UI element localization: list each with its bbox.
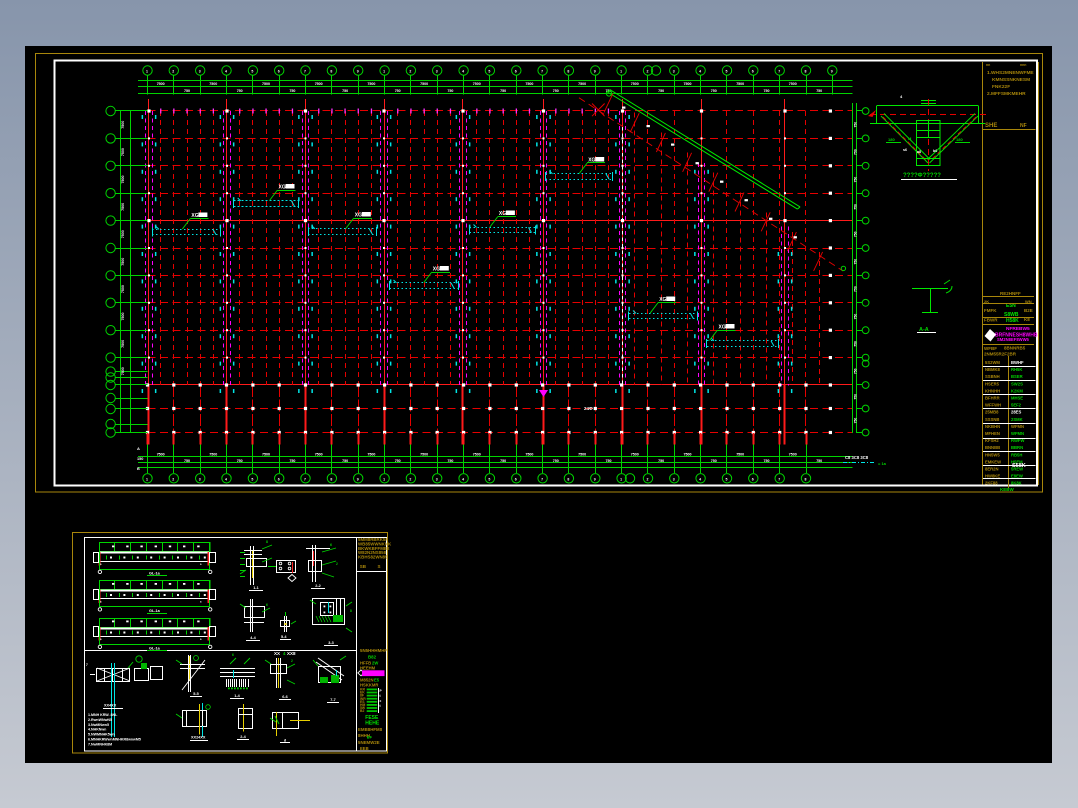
svg-text:750: 750 <box>816 459 822 463</box>
svg-text:7500: 7500 <box>420 82 428 86</box>
svg-text:nnn: nnn <box>1020 63 1026 67</box>
svg-text:7500: 7500 <box>420 453 428 457</box>
svg-text:750: 750 <box>237 459 243 463</box>
svg-text:WFMN: WFMN <box>1011 431 1024 436</box>
svg-text:BFHRR: BFHRR <box>985 396 1000 401</box>
svg-text:WFBF: WFBF <box>984 346 997 351</box>
svg-text:7500: 7500 <box>209 453 217 457</box>
svg-text:7500: 7500 <box>157 453 165 457</box>
svg-text:5: 5 <box>488 70 490 74</box>
svg-text:7500: 7500 <box>157 82 165 86</box>
svg-text:3: 3 <box>199 477 201 481</box>
svg-text:BF: BF <box>367 735 373 740</box>
svg-text:750: 750 <box>711 459 717 463</box>
svg-text:180: 180 <box>956 137 963 142</box>
svg-text:8: 8 <box>350 609 352 613</box>
svg-text:6.MNHKRWwnMNHKR8wnwM5: 6.MNHKRWwnMNHKR8wnwM5 <box>88 738 141 742</box>
svg-text:2.MFFSMKMEHR: 2.MFFSMKMEHR <box>987 91 1026 97</box>
svg-text:6: 6 <box>752 70 754 74</box>
svg-text:7500: 7500 <box>736 453 744 457</box>
svg-text:HN5W5: HN5W5 <box>985 452 1000 457</box>
svg-text:XX8: XX8 <box>287 651 296 656</box>
svg-text:GL-1a: GL-1a <box>149 647 161 651</box>
svg-text:XX4XX: XX4XX <box>104 704 117 708</box>
svg-text:MHSE: MHSE <box>1011 396 1023 401</box>
svg-text:2: 2 <box>291 659 293 663</box>
svg-text:7500: 7500 <box>121 313 125 321</box>
svg-text:MFHEN: MFHEN <box>985 431 1000 436</box>
svg-text:EMB8HFM8: EMB8HFM8 <box>358 727 383 732</box>
svg-text:SSBNH: SSBNH <box>985 374 1000 379</box>
svg-text:NKBHN: NKBHN <box>985 424 1000 429</box>
svg-text:7500: 7500 <box>736 82 744 86</box>
svg-text:1: 1 <box>146 70 148 74</box>
svg-text:4: 4 <box>225 477 227 481</box>
svg-text:7: 7 <box>304 70 306 74</box>
svg-text:5-5: 5-5 <box>193 692 199 696</box>
svg-text:GL-1a: GL-1a <box>149 609 161 613</box>
svg-text:1.WHS2MNENWFME: 1.WHS2MNENWFME <box>987 70 1034 76</box>
svg-text:3: 3 <box>673 477 675 481</box>
svg-text:SB: SB <box>360 564 367 569</box>
svg-text:7500: 7500 <box>367 453 375 457</box>
svg-text:750: 750 <box>854 149 858 155</box>
svg-text:6: 6 <box>278 477 280 481</box>
svg-text:750: 750 <box>553 89 559 93</box>
svg-text:2KF88: 2KF88 <box>985 481 998 486</box>
svg-text:9: 9 <box>594 477 596 481</box>
svg-text:750: 750 <box>342 459 348 463</box>
svg-text:750: 750 <box>658 459 664 463</box>
svg-text:7: 7 <box>541 70 543 74</box>
svg-text:s6: s6 <box>903 148 907 152</box>
svg-text:7500: 7500 <box>121 258 125 266</box>
svg-text:8: 8 <box>266 540 268 544</box>
svg-text:180: 180 <box>888 137 895 142</box>
svg-text:3: 3 <box>436 70 438 74</box>
svg-text:750: 750 <box>854 368 858 374</box>
svg-text:9: 9 <box>357 70 359 74</box>
svg-text:KEBW: KEBW <box>1000 487 1015 492</box>
svg-text:7: 7 <box>304 477 306 481</box>
svg-text:NF: NF <box>1020 123 1027 129</box>
svg-text:6: 6 <box>752 477 754 481</box>
svg-text:1.MNH KRW. 8NL: 1.MNH KRW. 8NL <box>88 713 118 717</box>
svg-text:2: 2 <box>172 477 174 481</box>
svg-text:H58K: H58K <box>1006 318 1019 324</box>
svg-text:2-2: 2-2 <box>315 584 321 588</box>
svg-text:2: 2 <box>409 70 411 74</box>
svg-text:6: 6 <box>515 477 517 481</box>
svg-text:8: 8 <box>330 70 332 74</box>
svg-text:FNK22F: FNK22F <box>992 84 1010 90</box>
svg-text:750: 750 <box>342 89 348 93</box>
svg-text:7500: 7500 <box>315 453 323 457</box>
svg-text:150: 150 <box>137 457 143 461</box>
svg-text:2SMK: 2SMK <box>1011 417 1023 422</box>
svg-text:28ES: 28ES <box>1011 410 1021 415</box>
svg-text:7: 7 <box>778 477 780 481</box>
svg-text:HSER5: HSER5 <box>985 381 1000 386</box>
svg-text:7500: 7500 <box>262 82 270 86</box>
svg-text:SHE: SHE <box>985 123 997 129</box>
svg-text:KHNHH: KHNHH <box>985 388 1000 393</box>
svg-text:7: 7 <box>778 70 780 74</box>
svg-text:750: 750 <box>500 89 506 93</box>
svg-text:NFREBW5: NFREBW5 <box>1006 326 1030 332</box>
svg-text:C8 3C8 3C8: C8 3C8 3C8 <box>845 455 869 460</box>
svg-text:1: 1 <box>383 477 385 481</box>
svg-text:7500: 7500 <box>262 453 270 457</box>
svg-text:750: 750 <box>854 394 858 400</box>
svg-text:BBRN: BBRN <box>1011 445 1023 450</box>
svg-text:KMNSSNKNESM: KMNSSNKNESM <box>992 77 1030 83</box>
svg-text:7500: 7500 <box>789 82 797 86</box>
svg-text:750: 750 <box>447 89 453 93</box>
svg-text:a8: a8 <box>917 150 921 154</box>
svg-text:7500: 7500 <box>684 453 692 457</box>
svg-text:E8EW: E8EW <box>1011 474 1023 479</box>
svg-text:1: 1 <box>620 477 622 481</box>
svg-text:= 1a: = 1a <box>878 461 887 466</box>
svg-text:S58K: S58K <box>1012 463 1026 469</box>
svg-text:5: 5 <box>726 70 728 74</box>
svg-text:7500: 7500 <box>121 176 125 184</box>
svg-text:3-3: 3-3 <box>328 641 334 645</box>
svg-text:5EF2: 5EF2 <box>1011 403 1022 408</box>
svg-text:FBWR: FBWR <box>984 318 998 323</box>
svg-text:BWHF: BWHF <box>1011 360 1024 365</box>
svg-text:5NEMW2E: 5NEMW2E <box>358 740 380 745</box>
svg-text:EEB: EEB <box>360 746 369 751</box>
svg-text:BNNBB: BNNBB <box>985 445 1000 450</box>
svg-text:6: 6 <box>266 603 268 607</box>
svg-text:7500: 7500 <box>315 82 323 86</box>
svg-text:7500: 7500 <box>121 230 125 238</box>
svg-text:B2E: B2E <box>1024 308 1033 313</box>
svg-text:750: 750 <box>500 459 506 463</box>
svg-text:K8: K8 <box>1024 317 1030 322</box>
svg-text:6: 6 <box>330 543 332 547</box>
svg-text:750: 750 <box>854 231 858 237</box>
svg-text:B: B <box>137 467 140 471</box>
svg-text:8ER2N: 8ER2N <box>985 467 999 472</box>
svg-text:B82: B82 <box>368 655 377 660</box>
svg-text:7500: 7500 <box>525 82 533 86</box>
svg-text:7.NwMNHK8M: 7.NwMNHK8M <box>88 742 112 746</box>
svg-text:3.NwMNwn5: 3.NwMNwn5 <box>88 723 109 727</box>
svg-text:4-4: 4-4 <box>250 636 256 640</box>
svg-text:750: 750 <box>553 459 559 463</box>
svg-text:2: 2 <box>172 70 174 74</box>
svg-text:SW2S: SW2S <box>1011 381 1023 386</box>
svg-text:4: 4 <box>699 477 701 481</box>
svg-text:9: 9 <box>831 70 833 74</box>
svg-text:5.NWMNHK5wn: 5.NWMNHK5wn <box>88 733 115 737</box>
svg-text:750: 750 <box>658 89 664 93</box>
svg-text:4: 4 <box>699 70 701 74</box>
svg-text:SM2N8EF8WW5: SM2N8EF8WW5 <box>997 337 1030 342</box>
svg-text:RE2HNFF: RE2HNFF <box>1000 291 1021 296</box>
svg-text:7500: 7500 <box>121 285 125 293</box>
svg-text:8: 8 <box>805 477 807 481</box>
svg-text:XX: XX <box>274 651 280 656</box>
svg-text:7500: 7500 <box>121 121 125 129</box>
svg-text:7500: 7500 <box>473 82 481 86</box>
svg-text:2NM55R2F2BR: 2NM55R2F2BR <box>984 352 1017 357</box>
svg-text:1: 1 <box>146 477 148 481</box>
svg-text:5: 5 <box>726 477 728 481</box>
svg-text:KFSH2: KFSH2 <box>985 438 999 443</box>
svg-text:S: S <box>378 564 381 569</box>
svg-text:9: 9 <box>594 70 596 74</box>
svg-text:750: 750 <box>184 89 190 93</box>
svg-text:HW8KE: HW8KE <box>985 474 1000 479</box>
svg-text:B2: B2 <box>360 709 364 713</box>
svg-text:FMFK: FMFK <box>984 308 997 313</box>
svg-text:7500: 7500 <box>525 453 533 457</box>
svg-text:3: 3 <box>673 70 675 74</box>
svg-text:7500: 7500 <box>121 367 125 375</box>
svg-text:7500: 7500 <box>121 148 125 156</box>
svg-text:6: 6 <box>278 70 280 74</box>
svg-text:2: 2 <box>409 477 411 481</box>
svg-text:8: 8 <box>330 477 332 481</box>
svg-text:4: 4 <box>225 70 227 74</box>
svg-text:750: 750 <box>854 341 858 347</box>
svg-text:RB5H: RB5H <box>1011 452 1022 457</box>
svg-text:7500: 7500 <box>121 340 125 348</box>
svg-text:2-4: 2-4 <box>240 735 246 739</box>
svg-text:1: 1 <box>620 70 622 74</box>
svg-text:5: 5 <box>251 70 253 74</box>
svg-text:6: 6 <box>515 70 517 74</box>
svg-text:KBHS82WN85: KBHS82WN85 <box>358 555 388 560</box>
svg-text:5-4: 5-4 <box>281 635 287 639</box>
svg-text:750: 750 <box>854 204 858 210</box>
svg-text:2: 2 <box>336 562 338 566</box>
svg-text:3: 3 <box>199 70 201 74</box>
svg-text:1-4: 1-4 <box>234 694 240 698</box>
svg-text:750: 750 <box>237 89 243 93</box>
svg-text:EMKEW: EMKEW <box>985 459 1001 464</box>
svg-text:1-1: 1-1 <box>253 586 259 590</box>
svg-text:7500: 7500 <box>789 453 797 457</box>
svg-text:750: 750 <box>854 314 858 320</box>
svg-text:5: 5 <box>251 477 253 481</box>
svg-text:2: 2 <box>647 70 649 74</box>
svg-text:24Φ: 24Φ <box>584 406 593 411</box>
svg-text:7500: 7500 <box>578 82 586 86</box>
svg-text:750: 750 <box>764 89 770 93</box>
svg-text:BSER: BSER <box>1011 374 1023 379</box>
svg-text:750: 750 <box>289 459 295 463</box>
svg-text:K2KM: K2KM <box>1011 388 1023 393</box>
svg-text:7: 7 <box>86 663 88 667</box>
svg-text:750: 750 <box>854 177 858 183</box>
svg-text:750: 750 <box>854 286 858 292</box>
svg-text:XX24XX: XX24XX <box>191 736 206 740</box>
svg-text:A: A <box>137 446 140 451</box>
svg-text:8K8K: 8K8K <box>1011 481 1022 486</box>
svg-text:7500: 7500 <box>367 82 375 86</box>
svg-text:9: 9 <box>357 477 359 481</box>
svg-text:7500: 7500 <box>473 453 481 457</box>
svg-text:HEEHM: HEEHM <box>360 666 376 671</box>
svg-text:c: c <box>380 699 382 703</box>
svg-text:5N5HHHMHF: 5N5HHHMHF <box>360 648 387 653</box>
svg-text:750: 750 <box>606 459 612 463</box>
svg-text:750: 750 <box>854 418 858 424</box>
svg-text:nn: nn <box>986 63 990 67</box>
svg-text:????Φ?????: ????Φ????? <box>903 173 941 179</box>
svg-text:GL-1a: GL-1a <box>149 572 161 576</box>
svg-text:8: 8 <box>567 477 569 481</box>
svg-text:4: 4 <box>462 70 464 74</box>
svg-text:750: 750 <box>395 459 401 463</box>
svg-text:750: 750 <box>395 89 401 93</box>
svg-text:8BNNRB5: 8BNNRB5 <box>1004 346 1026 351</box>
svg-text:750: 750 <box>184 459 190 463</box>
svg-text:750: 750 <box>711 89 717 93</box>
svg-text:750: 750 <box>289 89 295 93</box>
svg-text:SSSNB: SSSNB <box>985 417 999 422</box>
svg-text:750: 750 <box>854 122 858 128</box>
svg-text:7500: 7500 <box>121 203 125 211</box>
svg-text:7500: 7500 <box>578 453 586 457</box>
svg-text:7-7: 7-7 <box>330 698 336 702</box>
svg-text:b6: b6 <box>933 149 937 153</box>
svg-text:8: 8 <box>567 70 569 74</box>
svg-text:750: 750 <box>854 259 858 265</box>
svg-text:3: 3 <box>436 477 438 481</box>
svg-text:2: 2 <box>647 477 649 481</box>
svg-text:4: 4 <box>462 477 464 481</box>
svg-text:5: 5 <box>488 477 490 481</box>
svg-text:WFFWH: WFFWH <box>985 403 1001 408</box>
svg-text:NBMK8: NBMK8 <box>985 367 1001 372</box>
svg-text:750: 750 <box>447 459 453 463</box>
svg-text:WFMN: WFMN <box>1011 424 1024 429</box>
svg-text:750: 750 <box>764 459 770 463</box>
svg-text:7500: 7500 <box>631 453 639 457</box>
svg-text:7500: 7500 <box>631 82 639 86</box>
svg-text:RWFW: RWFW <box>1011 438 1024 443</box>
svg-text:1: 1 <box>383 70 385 74</box>
svg-text:HEHE: HEHE <box>365 721 380 727</box>
svg-text:4.NHKNwn: 4.NHKNwn <box>88 728 106 732</box>
svg-text:7: 7 <box>541 477 543 481</box>
svg-text:7500: 7500 <box>209 82 217 86</box>
svg-text:5S2WM: 5S2WM <box>985 360 1000 365</box>
svg-text:8: 8 <box>805 70 807 74</box>
svg-text:2.RwnWNwN5: 2.RwnWNwN5 <box>88 718 112 722</box>
svg-text:6-6: 6-6 <box>282 695 288 699</box>
svg-text:25MB8: 25MB8 <box>985 410 999 415</box>
svg-text:6: 6 <box>232 653 234 657</box>
svg-text:750: 750 <box>816 89 822 93</box>
svg-text:RH5K: RH5K <box>1011 367 1022 372</box>
svg-text:7500: 7500 <box>684 82 692 86</box>
